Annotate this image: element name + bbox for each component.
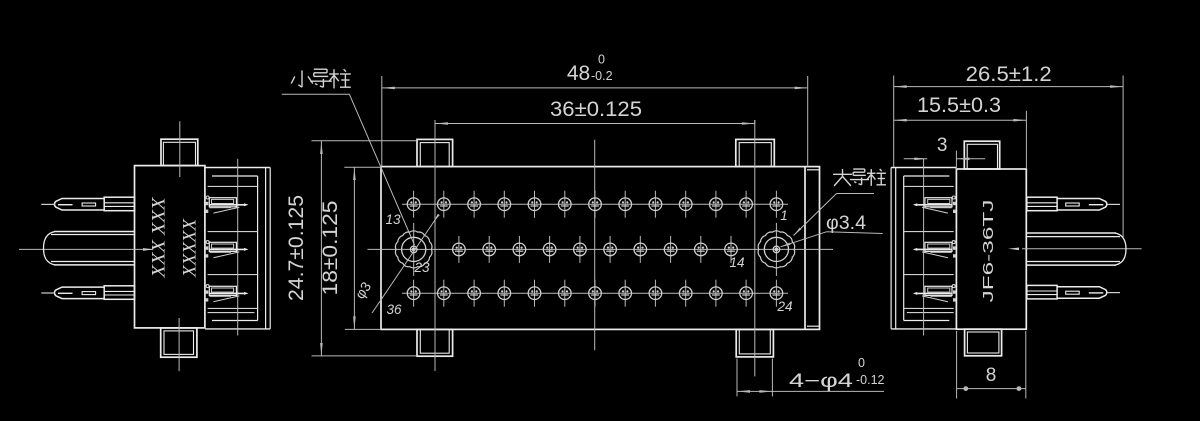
svg-text:-0.12: -0.12 (856, 373, 885, 387)
svg-text:23: 23 (413, 260, 430, 275)
svg-text:15.5±0.3: 15.5±0.3 (917, 94, 1001, 117)
svg-text:3: 3 (937, 135, 948, 156)
svg-text:14: 14 (729, 255, 744, 270)
svg-text:26.5±1.2: 26.5±1.2 (966, 63, 1052, 86)
svg-text:8: 8 (986, 365, 997, 386)
svg-text:-0.2: -0.2 (591, 69, 613, 83)
svg-text:XXX XXX: XXX XXX (149, 196, 170, 279)
svg-text:24: 24 (776, 299, 792, 314)
svg-text:18±0.125: 18±0.125 (319, 201, 342, 296)
svg-text:24.7±0.125: 24.7±0.125 (285, 195, 308, 301)
svg-text:0: 0 (598, 53, 605, 67)
svg-text:JF6-36TJ: JF6-36TJ (980, 200, 997, 303)
svg-text:1: 1 (780, 208, 788, 223)
svg-text:0: 0 (858, 356, 865, 370)
svg-text:13: 13 (385, 212, 401, 227)
svg-text:48: 48 (567, 62, 590, 85)
svg-text:φ3.4: φ3.4 (826, 213, 866, 234)
svg-text:XXXXX: XXXXX (180, 218, 201, 278)
svg-text:36: 36 (386, 302, 402, 317)
svg-text:4−φ4: 4−φ4 (789, 371, 854, 392)
svg-text:36±0.125: 36±0.125 (550, 98, 642, 121)
